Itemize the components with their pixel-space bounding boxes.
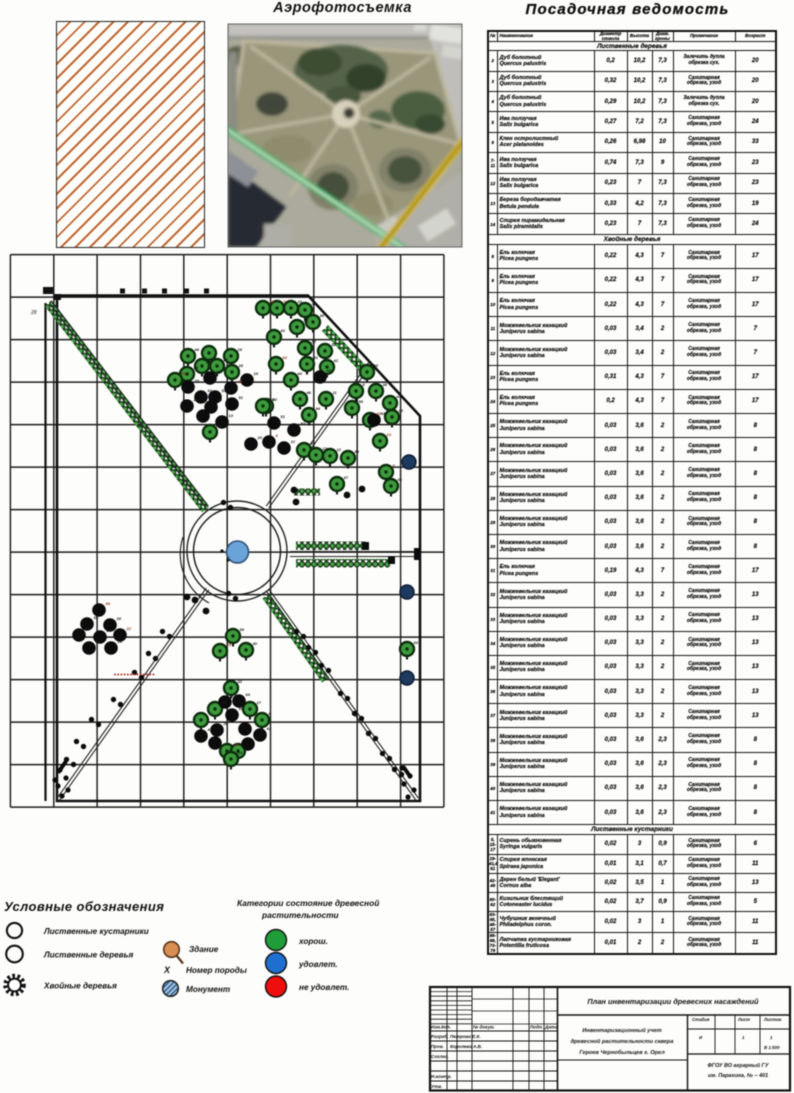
svg-text:29: 29	[237, 347, 243, 352]
svg-text:42: 42	[266, 726, 272, 731]
svg-text:27: 27	[216, 369, 222, 374]
svg-text:59: 59	[255, 735, 260, 740]
svg-text:Условные обозначения: Условные обозначения	[4, 899, 164, 914]
svg-text:59: 59	[240, 627, 245, 632]
svg-text:52: 52	[222, 388, 227, 393]
svg-text:удовлет.: удовлет.	[298, 960, 338, 969]
svg-text:59: 59	[355, 449, 360, 454]
svg-text:Категории состояние древесно: Категории состояние древесной	[237, 898, 379, 908]
svg-text:64: 64	[246, 692, 251, 697]
svg-text:55: 55	[239, 706, 244, 711]
svg-text:44: 44	[221, 700, 227, 705]
svg-text:12: 12	[291, 439, 296, 444]
svg-text:51: 51	[281, 414, 286, 419]
svg-text:10: 10	[195, 378, 200, 383]
svg-text:И: И	[699, 1035, 703, 1040]
svg-text:19: 19	[254, 371, 259, 376]
svg-text:20: 20	[257, 435, 263, 440]
svg-text:План инвентаризации древесни: План инвентаризации древесних насаждений	[587, 997, 759, 1006]
svg-text:Петрова Е.К.: Петрова Е.К.	[450, 1034, 481, 1039]
svg-text:22: 22	[322, 446, 328, 451]
svg-text:34: 34	[194, 365, 199, 370]
svg-text:Здание: Здание	[189, 945, 219, 954]
svg-text:54: 54	[381, 411, 386, 416]
svg-text:52: 52	[332, 342, 337, 347]
svg-text:Хвойные деревья: Хвойные деревья	[43, 982, 117, 991]
svg-text:древесной растительности скв: древесной растительности сквера	[571, 1038, 674, 1045]
svg-text:44: 44	[396, 394, 402, 399]
svg-text:Х: Х	[163, 965, 171, 975]
svg-text:32: 32	[238, 679, 243, 684]
svg-text:24: 24	[106, 628, 112, 633]
svg-text:22: 22	[126, 626, 132, 631]
svg-text:Монумент: Монумент	[186, 985, 230, 994]
svg-text:13: 13	[387, 432, 392, 437]
svg-text:38: 38	[383, 382, 388, 387]
svg-text:55: 55	[270, 397, 275, 402]
svg-text:Лист: Лист	[737, 1017, 750, 1022]
svg-text:30: 30	[253, 641, 258, 646]
svg-text:43: 43	[207, 727, 213, 732]
svg-text:растительности: растительности	[261, 910, 339, 920]
svg-text:59: 59	[94, 615, 99, 620]
svg-text:1: 1	[770, 1035, 773, 1040]
svg-text:44: 44	[315, 406, 321, 411]
svg-text:63: 63	[210, 407, 215, 412]
svg-text:23: 23	[237, 379, 243, 384]
svg-text:Разраб.: Разраб.	[431, 1033, 448, 1039]
svg-text:44: 44	[310, 441, 316, 446]
svg-text:Утв.: Утв.	[431, 1084, 442, 1089]
svg-text:В 1:500: В 1:500	[764, 1045, 780, 1050]
svg-text:36: 36	[96, 639, 101, 644]
svg-text:52: 52	[301, 421, 306, 426]
svg-text:17: 17	[257, 700, 262, 705]
svg-text:11: 11	[333, 390, 338, 395]
svg-text:26: 26	[223, 721, 229, 726]
svg-text:Героев Чернобыльцев г. Орел: Героев Чернобыльцев г. Орел	[579, 1049, 665, 1056]
svg-text:28: 28	[238, 363, 244, 368]
svg-text:22: 22	[223, 357, 229, 362]
svg-text:41: 41	[313, 355, 319, 360]
svg-text:28: 28	[116, 616, 122, 621]
svg-text:ФГОУ ВО аграрный ГУ: ФГОУ ВО аграрный ГУ	[708, 1062, 769, 1069]
svg-text:35: 35	[227, 642, 232, 647]
svg-text:Листов: Листов	[763, 1017, 782, 1022]
svg-text:им. Парахина, № – 401: им. Парахина, № – 401	[708, 1073, 768, 1079]
svg-text:12: 12	[337, 447, 342, 452]
svg-text:23: 23	[216, 423, 222, 428]
svg-text:63: 63	[283, 355, 288, 360]
svg-text:4: 4	[275, 433, 279, 438]
svg-text:10: 10	[298, 299, 303, 304]
svg-text:55: 55	[374, 363, 379, 368]
svg-text:59: 59	[359, 399, 364, 404]
svg-text:хорош.: хорош.	[298, 937, 328, 946]
svg-text:38: 38	[312, 301, 317, 306]
svg-text:49: 49	[194, 347, 200, 352]
svg-text:Лиственные кустарники: Лиственные кустарники	[43, 927, 149, 936]
svg-text:37: 37	[344, 475, 349, 480]
svg-text:49: 49	[105, 601, 111, 606]
svg-text:№ докум.: № докум.	[473, 1025, 495, 1030]
svg-text:Стадия: Стадия	[692, 1017, 710, 1022]
svg-text:17: 17	[218, 398, 223, 403]
svg-text:40: 40	[181, 371, 187, 376]
svg-text:Дата: Дата	[544, 1025, 558, 1030]
svg-text:62: 62	[208, 388, 213, 393]
svg-text:50: 50	[312, 339, 317, 344]
svg-text:46: 46	[306, 390, 312, 395]
svg-text:36: 36	[320, 313, 325, 318]
svg-text:36: 36	[304, 318, 309, 323]
svg-text:64: 64	[86, 626, 91, 631]
svg-text:1: 1	[742, 1035, 745, 1040]
svg-text:Королева А.В.: Королева А.В.	[450, 1044, 482, 1049]
svg-text:51: 51	[239, 395, 244, 400]
svg-text:28: 28	[30, 310, 37, 316]
svg-text:Н.контр.: Н.контр.	[431, 1074, 452, 1079]
svg-text:Лиственные деревья: Лиственные деревья	[43, 951, 133, 960]
svg-text:24: 24	[237, 750, 243, 755]
svg-text:60: 60	[298, 371, 303, 376]
svg-text:Подп.: Подп.	[530, 1025, 543, 1030]
svg-text:17: 17	[232, 693, 237, 698]
svg-text:13: 13	[229, 413, 234, 418]
svg-text:24: 24	[117, 639, 123, 644]
svg-text:66: 66	[398, 477, 403, 482]
svg-text:42: 42	[333, 358, 339, 363]
svg-text:Пров.: Пров.	[431, 1044, 444, 1049]
svg-text:28: 28	[193, 397, 199, 402]
svg-text:42: 42	[280, 328, 286, 333]
svg-text:33: 33	[399, 408, 404, 413]
svg-text:Соглас.: Соглас.	[431, 1054, 449, 1059]
svg-text:43: 43	[413, 640, 419, 645]
svg-text:не удовлет.: не удовлет.	[299, 983, 349, 992]
svg-text:Номер породы: Номер породы	[186, 966, 247, 975]
svg-text:29: 29	[233, 742, 239, 747]
svg-text:10: 10	[209, 357, 214, 362]
svg-text:65: 65	[327, 368, 332, 373]
svg-text:53: 53	[270, 299, 275, 304]
svg-text:Изм.Кол.: Изм.Кол.	[431, 1025, 451, 1030]
svg-text:Инвентаризационный учет: Инвентаризационный учет	[582, 1027, 661, 1034]
